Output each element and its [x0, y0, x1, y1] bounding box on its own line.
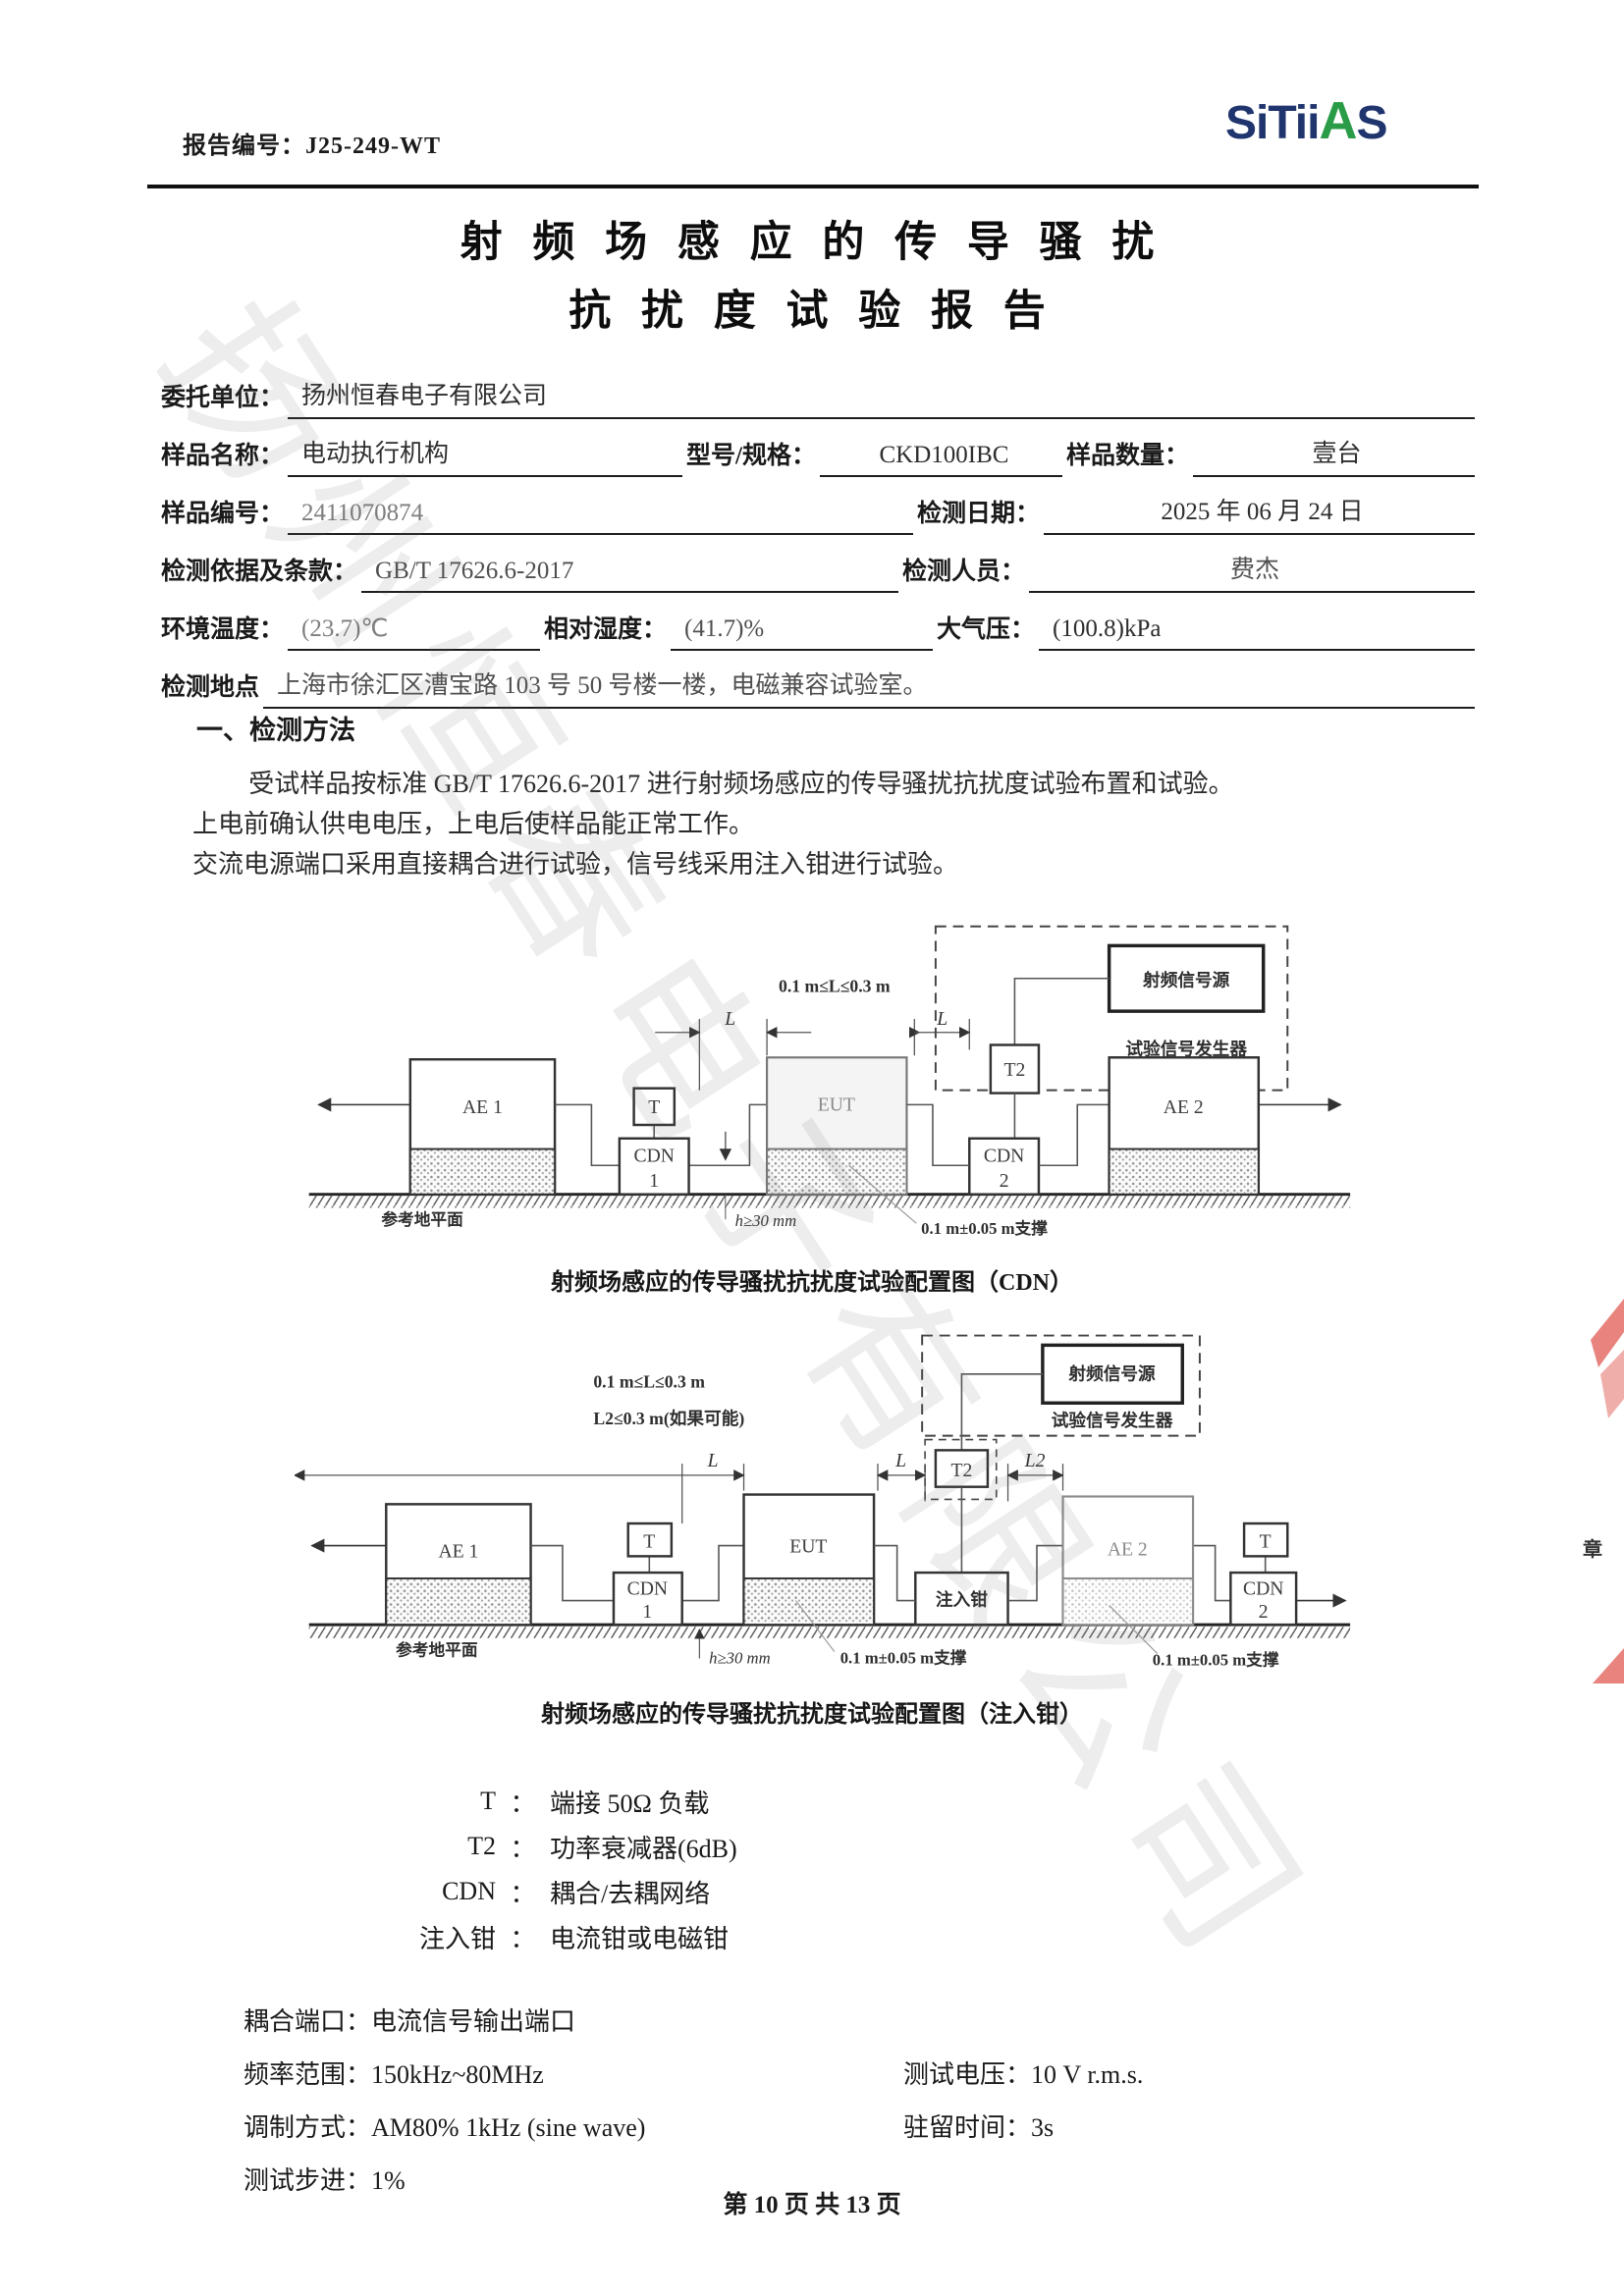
dim-range-label: 0.1 m≤L≤0.3 m: [779, 977, 891, 996]
legend-row-cdn: CDN ： 耦合/去耦网络: [314, 1869, 737, 1914]
pressure-label: 大气压：: [933, 610, 1039, 651]
dim-l-label-2: L: [936, 1009, 947, 1030]
cdn-configuration-diagram: T CDN 1 EUT L L 0.1 m≤L≤0.3 m: [295, 905, 1355, 1238]
legend-desc: 端接 50Ω 负载: [550, 1784, 709, 1820]
param-modulation: 调制方式：AM80% 1kHz (sine wave): [244, 2108, 903, 2144]
cdn1-box: CDN 1: [614, 1573, 682, 1625]
report-info-form: 委托单位： 扬州恒春电子有限公司 样品名称： 电动执行机构 型号/规格： CKD…: [157, 361, 1475, 709]
ae2-label: AE 2: [1164, 1097, 1204, 1118]
dwell-label: 驻留时间：: [903, 2113, 1031, 2142]
dwell-value: 3s: [1031, 2113, 1054, 2142]
cdn2-label: CDN: [1243, 1579, 1283, 1600]
modulation-label: 调制方式：: [244, 2113, 371, 2142]
standard-value: GB/T 17626.6-2017: [361, 558, 898, 593]
generator-label: 试验信号发生器: [1125, 1038, 1247, 1058]
report-title-line2: 抗 扰 度 试 验 报 告: [0, 277, 1624, 338]
section-heading-method: 一、检测方法: [196, 709, 355, 747]
legend-desc: 电流钳或电磁钳: [550, 1919, 729, 1955]
test-date-label: 检测日期：: [913, 494, 1044, 535]
legend-row-clamp: 注入钳 ： 电流钳或电磁钳: [314, 1914, 737, 1959]
voltage-label: 测试电压：: [903, 2060, 1031, 2089]
location-label: 检测地点: [157, 667, 263, 709]
cdn1-number: 1: [642, 1602, 652, 1623]
legend-term: CDN: [314, 1877, 496, 1906]
param-row-coupling: 耦合端口：电流信号输出端口: [244, 1993, 1481, 2046]
sample-name-value: 电动执行机构: [288, 434, 682, 477]
ground-label: 参考地平面: [396, 1640, 478, 1660]
humidity-label: 相对湿度：: [540, 610, 671, 651]
h-label: h≥30 mm: [709, 1648, 770, 1667]
ae2-box: [1110, 1057, 1259, 1194]
location-value: 上海市徐汇区漕宝路 103 号 50 号楼一楼，电磁兼容试验室。: [263, 666, 1475, 709]
t2-label: T2: [951, 1461, 973, 1481]
header-divider: [147, 185, 1479, 188]
param-row-freq-voltage: 频率范围：150kHz~80MHz 测试电压：10 V r.m.s.: [244, 2046, 1481, 2099]
client-value: 扬州恒春电子有限公司: [288, 376, 1475, 419]
dim-l2-label: L: [894, 1451, 906, 1471]
stamp-graphic: 章: [1579, 1271, 1624, 1733]
legend-term: T: [314, 1787, 496, 1816]
t-left-label: T: [643, 1532, 655, 1553]
form-row-client: 委托单位： 扬州恒春电子有限公司: [157, 361, 1475, 419]
generator-label: 试验信号发生器: [1052, 1410, 1173, 1430]
dim-range-label-2: L2≤0.3 m(如果可能): [593, 1408, 744, 1428]
model-label: 型号/规格：: [682, 436, 820, 477]
standard-label: 检测依据及条款：: [157, 552, 361, 593]
cdn1-label: CDN: [627, 1579, 668, 1600]
legend-colon: ：: [496, 1784, 550, 1820]
clamp-box: 注入钳: [915, 1573, 1007, 1625]
ae2-box: [1063, 1497, 1194, 1626]
stamp-shape-bottom: [1593, 1648, 1624, 1683]
rf-source-label: 射频信号源: [1142, 970, 1230, 990]
t2-box: T2: [991, 1045, 1039, 1139]
tester-value: 费杰: [1029, 550, 1475, 593]
legend-desc: 耦合/去耦网络: [550, 1874, 710, 1910]
method-paragraph: 受试样品按标准 GB/T 17626.6-2017 进行射频场感应的传导骚扰抗扰…: [192, 764, 1449, 884]
coupling-value: 电流信号输出端口: [371, 2007, 575, 2036]
cdn1-number: 1: [649, 1171, 659, 1192]
sample-no-value: 2411070874: [288, 500, 913, 535]
model-value: CKD100IBC: [820, 442, 1062, 477]
test-date-value: 2025 年 06 月 24 日: [1044, 492, 1475, 535]
coupling-label: 耦合端口：: [244, 2007, 371, 2036]
modulation-value: AM80% 1kHz (sine wave): [371, 2113, 645, 2142]
sitiias-logo: SiTiiAS: [1225, 90, 1387, 151]
eut-box: EUT: [767, 1057, 906, 1194]
form-row-sample: 样品名称： 电动执行机构 型号/规格： CKD100IBC 样品数量： 壹台: [157, 419, 1475, 477]
param-coupling: 耦合端口：电流信号输出端口: [244, 2002, 903, 2038]
qty-value: 壹台: [1193, 434, 1475, 477]
legend-row-t2: T2 ： 功率衰减器(6dB): [314, 1824, 737, 1869]
cdn2-number: 2: [1259, 1602, 1269, 1623]
form-row-location: 检测地点 上海市徐汇区漕宝路 103 号 50 号楼一楼，电磁兼容试验室。: [157, 651, 1475, 709]
logo-text-3: S: [1356, 97, 1386, 149]
param-freq: 频率范围：150kHz~80MHz: [244, 2055, 903, 2091]
method-line-3: 交流电源端口采用直接耦合进行试验，信号线采用注入钳进行试验。: [192, 844, 1449, 884]
eut-box: [744, 1495, 875, 1626]
legend-colon: ：: [496, 1919, 550, 1955]
form-row-standard: 检测依据及条款： GB/T 17626.6-2017 检测人员： 费杰: [157, 535, 1475, 593]
param-voltage: 测试电压：10 V r.m.s.: [903, 2055, 1143, 2091]
eut-label: EUT: [789, 1536, 827, 1557]
temp-label: 环境温度：: [157, 610, 288, 651]
legend-term: 注入钳: [314, 1919, 496, 1955]
cdn1-label: CDN: [633, 1146, 674, 1166]
ae1-label: AE 1: [462, 1097, 503, 1118]
cdn2-box: CDN 2: [1230, 1573, 1296, 1625]
form-row-environment: 环境温度： (23.7)℃ 相对湿度： (41.7)% 大气压： (100.8)…: [157, 593, 1475, 651]
stamp-shape-mid: [1600, 1350, 1624, 1418]
qty-label: 样品数量：: [1062, 436, 1193, 477]
rf-source-label: 射频信号源: [1067, 1363, 1156, 1384]
logo-text-2: A: [1319, 91, 1356, 150]
report-number-label: 报告编号：: [183, 133, 305, 159]
cdn1-box: CDN 1: [620, 1139, 689, 1195]
page-number-footer: 第 10 页 共 13 页: [0, 2185, 1624, 2220]
temp-value: (23.7)℃: [288, 614, 540, 651]
ae1-box: [386, 1504, 530, 1625]
client-label: 委托单位：: [157, 378, 288, 419]
t2-box: T2: [925, 1440, 997, 1573]
tester-label: 检测人员：: [898, 552, 1029, 593]
test-report-page: 报告编号：J25-249-WT SiTiiAS 射 频 场 感 应 的 传 导 …: [0, 0, 1624, 2296]
legend-term: T2: [314, 1832, 496, 1861]
param-row-mod-dwell: 调制方式：AM80% 1kHz (sine wave) 驻留时间：3s: [244, 2099, 1481, 2152]
method-line-1: 受试样品按标准 GB/T 17626.6-2017 进行射频场感应的传导骚扰抗扰…: [192, 764, 1449, 804]
legend-colon: ：: [496, 1874, 550, 1910]
ground-plane-graphic: [309, 1195, 1350, 1208]
clamp-label: 注入钳: [936, 1588, 988, 1609]
sample-name-label: 样品名称：: [157, 436, 288, 477]
sample-no-label: 样品编号：: [157, 494, 288, 535]
cdn2-label: CDN: [984, 1146, 1024, 1166]
t-box: T: [634, 1089, 675, 1125]
t-box-right: T: [1244, 1523, 1287, 1556]
ae1-label: AE 1: [438, 1541, 478, 1562]
support-label: 0.1 m±0.05 m支撑: [921, 1218, 1048, 1238]
dim-l1-label: L: [707, 1451, 719, 1471]
diagram2-caption: 射频场感应的传导骚扰抗扰度试验配置图（注入钳）: [0, 1694, 1624, 1729]
symbol-legend: T ： 端接 50Ω 负载 T2 ： 功率衰减器(6dB) CDN ： 耦合/去…: [314, 1779, 737, 1959]
dim-range-label-1: 0.1 m≤L≤0.3 m: [593, 1372, 705, 1392]
support2-label: 0.1 m±0.05 m支撑: [1153, 1649, 1279, 1669]
freq-value: 150kHz~80MHz: [371, 2060, 544, 2089]
t-box-label: T: [648, 1097, 660, 1118]
pressure-value: (100.8)kPa: [1039, 615, 1475, 651]
test-parameters: 耦合端口：电流信号输出端口 频率范围：150kHz~80MHz 测试电压：10 …: [244, 1993, 1481, 2205]
h-label: h≥30 mm: [735, 1211, 796, 1230]
report-number-value: J25-249-WT: [305, 133, 441, 159]
t2-label: T2: [1004, 1060, 1026, 1081]
dim-l2-value-label: L2: [1024, 1451, 1046, 1471]
legend-row-t: T ： 端接 50Ω 负载: [314, 1779, 737, 1824]
report-title-line1: 射 频 场 感 应 的 传 导 骚 扰: [0, 208, 1624, 269]
param-dwell: 驻留时间：3s: [903, 2108, 1054, 2144]
ground-label: 参考地平面: [381, 1209, 463, 1229]
eut-label: EUT: [818, 1095, 855, 1115]
voltage-value: 10 V r.m.s.: [1031, 2060, 1143, 2089]
logo-text-1: SiTii: [1225, 97, 1319, 149]
t-box-left: T: [628, 1523, 672, 1556]
freq-label: 频率范围：: [244, 2060, 371, 2089]
t-right-label: T: [1260, 1532, 1272, 1553]
dim-l-label-1: L: [724, 1009, 735, 1030]
cdn2-box: CDN 2: [969, 1139, 1039, 1195]
clamp-configuration-diagram: 0.1 m≤L≤0.3 m L2≤0.3 m(如果可能) AE 1 T CDN …: [295, 1325, 1355, 1669]
ae1-box: [410, 1059, 555, 1194]
method-line-2: 上电前确认供电电压，上电后使样品能正常工作。: [192, 804, 1449, 844]
ae2-label: AE 2: [1108, 1539, 1148, 1560]
dashed-generator-region: 射频信号源 试验信号发生器: [922, 1336, 1200, 1451]
report-number: 报告编号：J25-249-WT: [183, 126, 441, 160]
legend-desc: 功率衰减器(6dB): [550, 1829, 737, 1865]
cdn2-number: 2: [1000, 1171, 1009, 1192]
ground-plane-graphic: [309, 1625, 1350, 1638]
diagram1-caption: 射频场感应的传导骚扰抗扰度试验配置图（CDN）: [0, 1262, 1624, 1297]
form-row-sample-no: 样品编号： 2411070874 检测日期： 2025 年 06 月 24 日: [157, 477, 1475, 535]
humidity-value: (41.7)%: [671, 615, 933, 651]
stamp-partial-char: 章: [1583, 1537, 1602, 1561]
red-stamp-fragment: 章: [1579, 1271, 1624, 1733]
legend-colon: ：: [496, 1829, 550, 1865]
support1-label: 0.1 m±0.05 m支撑: [840, 1647, 967, 1667]
